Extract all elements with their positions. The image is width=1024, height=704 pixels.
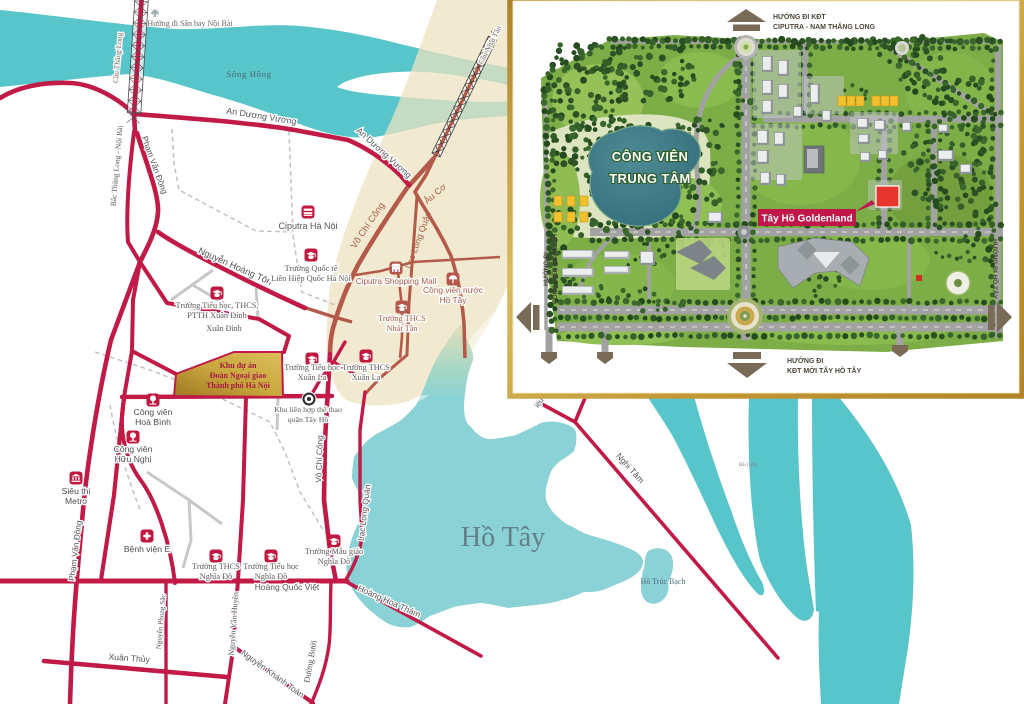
svg-text:CÔNG VIÊN: CÔNG VIÊN [612,149,689,164]
svg-text:Võ Chí Công: Võ Chí Công [313,435,325,483]
svg-text:Xuân La: Xuân La [298,373,327,382]
svg-text:Trường THCS: Trường THCS [192,562,240,571]
svg-text:PTTH Xuân Đỉnh: PTTH Xuân Đỉnh [187,311,247,320]
svg-text:TRUNG TÂM: TRUNG TÂM [609,171,691,186]
svg-text:Sông Hồng: Sông Hồng [226,69,271,79]
svg-text:Hữu Nghị: Hữu Nghị [115,454,152,464]
svg-text:Bệnh viện E: Bệnh viện E [124,544,171,554]
svg-text:Trường Tiểu học: Trường Tiểu học [243,562,299,571]
svg-text:Trường THCS: Trường THCS [342,363,390,372]
svg-text:Hồ Trúc Bạch: Hồ Trúc Bạch [641,577,686,586]
svg-text:Trường THCS: Trường THCS [378,314,426,323]
svg-text:HƯỚNG ĐI: HƯỚNG ĐI [787,356,823,365]
svg-text:Nghĩa Đô: Nghĩa Đô [318,557,351,566]
svg-text:Hồ Tây: Hồ Tây [440,295,468,305]
svg-text:Trường Mẫu giáo: Trường Mẫu giáo [305,547,363,556]
svg-text:Hoà Bình: Hoà Bình [135,417,171,427]
svg-text:HƯỚNG ĐI: HƯỚNG ĐI [541,252,550,286]
svg-text:Siêu thị: Siêu thị [62,486,91,496]
svg-text:Khu liên hợp thể thao: Khu liên hợp thể thao [274,405,342,414]
svg-text:Thành phố Hà Nội: Thành phố Hà Nội [206,381,271,390]
svg-text:Ciputra Hà Nội: Ciputra Hà Nội [278,221,337,231]
svg-text:Tây Hồ Goldenland: Tây Hồ Goldenland [761,213,852,225]
svg-text:Nhất Tân: Nhất Tân [387,324,419,333]
svg-text:quận Tây Hồ: quận Tây Hồ [288,415,329,424]
svg-text:Công viên: Công viên [114,444,153,454]
svg-text:Trường Tiểu học, THCS,: Trường Tiểu học, THCS, [176,301,259,310]
svg-text:Đoàn Ngoại giao: Đoàn Ngoại giao [210,371,266,380]
svg-text:Trường Tiểu học: Trường Tiểu học [284,363,340,372]
svg-text:Hồ Tây: Hồ Tây [461,522,545,553]
svg-text:CÔNG VIÊN HÒA BÌNH: CÔNG VIÊN HÒA BÌNH [550,234,559,304]
svg-text:Xuân La: Xuân La [352,373,381,382]
svg-text:Xuân Đỉnh: Xuân Đỉnh [206,324,241,333]
svg-text:HƯỚNG ĐI KĐT: HƯỚNG ĐI KĐT [773,12,826,21]
svg-text:Metro: Metro [65,496,87,506]
svg-text:Hướng đi Sân bay Nội Bài: Hướng đi Sân bay Nội Bài [147,19,233,28]
svg-text:CIPUTRA - NAM THĂNG LONG: CIPUTRA - NAM THĂNG LONG [773,22,876,31]
svg-text:Công viên nước: Công viên nước [423,285,483,295]
svg-text:Hoàng Quốc Việt: Hoàng Quốc Việt [255,582,320,592]
svg-text:Nghĩa Đô: Nghĩa Đô [255,572,288,581]
svg-text:Công viên: Công viên [134,407,173,417]
svg-text:Liên Hiệp Quốc Hà Nội: Liên Hiệp Quốc Hà Nội [271,274,351,283]
svg-text:Nghĩa Đô: Nghĩa Đô [200,572,233,581]
svg-text:Trường Quốc tế: Trường Quốc tế [285,264,338,273]
svg-text:Khu dự án: Khu dự án [220,361,257,370]
svg-text:Bãi Giữa: Bãi Giữa [739,463,758,468]
